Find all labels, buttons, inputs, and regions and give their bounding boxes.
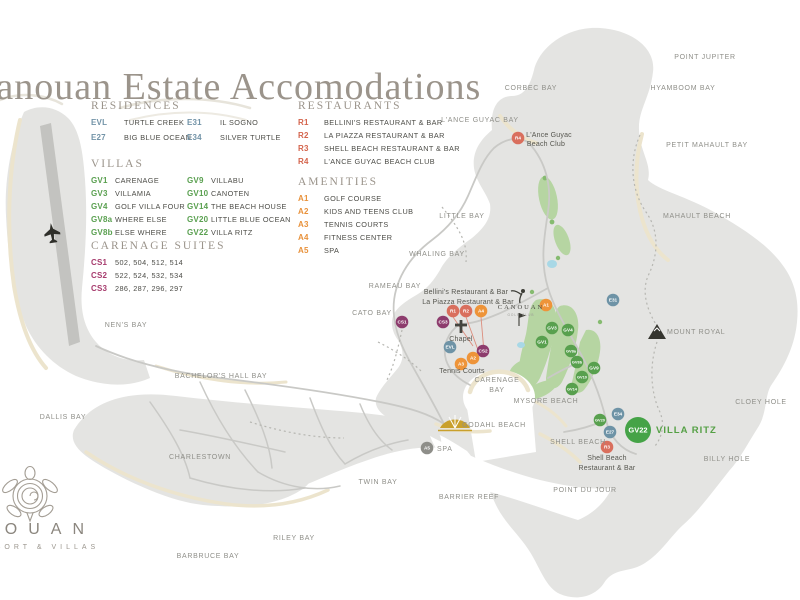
legend-label: 286, 287, 296, 297: [115, 284, 183, 293]
turtle-logo-icon: [1, 467, 60, 522]
legend-heading-villas: VILLAS: [91, 158, 283, 170]
map-label: NEN'S BAY: [105, 322, 148, 329]
legend-code: R4: [298, 157, 324, 166]
map-label: MAHAULT BEACH: [663, 213, 731, 220]
legend-item-GV20: GV20LITTLE BLUE OCEAN: [187, 215, 283, 225]
svg-text:GV8a: GV8a: [566, 348, 577, 353]
svg-text:GV9: GV9: [589, 366, 599, 371]
svg-text:GV1: GV1: [537, 340, 547, 345]
legend-label: LITTLE BLUE OCEAN: [211, 215, 291, 224]
legend-code: GV1: [91, 176, 115, 185]
legend-label: THE BEACH HOUSE: [211, 202, 287, 211]
legend-item-R2: R2LA PIAZZA RESTAURANT & BAR: [298, 131, 460, 141]
legend-code: GV8a: [91, 215, 115, 224]
svg-text:GV8b: GV8b: [572, 359, 583, 364]
map-marker-R1[interactable]: R1: [447, 305, 460, 318]
svg-text:R1: R1: [450, 309, 456, 314]
legend-residences: RESIDENCESEVLTURTLE CREEKE27BIG BLUE OCE…: [91, 100, 283, 147]
golf-club-subtitle: GOLF CLUB: [507, 313, 534, 317]
legend-label: 502, 504, 512, 514: [115, 258, 183, 267]
legend-label: SHELL BEACH RESTAURANT & BAR: [324, 144, 460, 153]
legend-code: CS1: [91, 258, 115, 267]
legend-code: E27: [91, 133, 124, 142]
legend-amenities: AMENITIESA1GOLF COURSEA2KIDS AND TEENS C…: [298, 176, 413, 259]
map-label: GODAHL BEACH: [462, 422, 526, 429]
legend-code: A1: [298, 194, 324, 203]
map-marker-GV22[interactable]: GV22: [625, 417, 651, 443]
legend-label: TURTLE CREEK: [124, 118, 184, 127]
map-label: RAMEAU BAY: [369, 283, 421, 290]
legend-label: LA PIAZZA RESTAURANT & BAR: [324, 131, 445, 140]
map-label: LITTLE BAY: [439, 213, 484, 220]
map-label: CHARLESTOWN: [169, 454, 231, 461]
map-label: CARENAGE: [475, 377, 520, 384]
legend-code: A4: [298, 233, 324, 242]
legend-label: SPA: [324, 246, 339, 255]
legend-carenage_suites: CARENAGE SUITESCS1502, 504, 512, 514CS25…: [91, 240, 225, 297]
map-marker-GV3[interactable]: GV3: [546, 322, 559, 335]
map-marker-GV4[interactable]: GV4: [562, 324, 575, 337]
legend-item-GV14: GV14THE BEACH HOUSE: [187, 202, 283, 212]
map-label: Bellini's Restaurant & Bar: [424, 289, 509, 296]
map-label: SPA: [437, 446, 453, 453]
legend-item-GV10: GV10CANOTEN: [187, 189, 283, 199]
legend-code: GV3: [91, 189, 115, 198]
legend-restaurants: RESTAURANTSR1BELLINI'S RESTAURANT & BARR…: [298, 100, 460, 170]
map-label: BACHELOR'S HALL BAY: [175, 373, 267, 380]
legend-item-E27: E27BIG BLUE OCEAN: [91, 133, 187, 143]
legend-label: KIDS AND TEENS CLUB: [324, 207, 413, 216]
legend-item-E34: E34SILVER TURTLE: [187, 133, 283, 143]
map-marker-GV9[interactable]: GV9: [588, 362, 601, 375]
svg-text:GV4: GV4: [563, 328, 573, 333]
map-label: SHELL BEACH: [550, 439, 606, 446]
svg-text:A4: A4: [478, 309, 484, 314]
legend-item-R3: R3SHELL BEACH RESTAURANT & BAR: [298, 144, 460, 154]
svg-text:A3: A3: [458, 362, 464, 367]
legend-code: GV10: [187, 189, 211, 198]
map-label: CLOEY HOLE: [735, 399, 787, 406]
legend-code: GV8b: [91, 228, 115, 237]
map-marker-CS3[interactable]: CS3: [437, 316, 450, 329]
map-marker-GV14[interactable]: GV14: [566, 383, 579, 396]
resort-logo-name: CANOUAN: [0, 521, 95, 539]
svg-text:R2: R2: [463, 309, 469, 314]
map-marker-R4[interactable]: R4: [512, 132, 525, 145]
map-label: Beach Club: [527, 141, 565, 148]
svg-text:E34: E34: [614, 412, 623, 417]
legend-label: CARENAGE: [115, 176, 159, 185]
legend-item-E31: E31IL SOGNO: [187, 118, 283, 128]
svg-text:CS1: CS1: [397, 320, 407, 325]
legend-item-GV3: GV3VILLAMIA: [91, 189, 187, 199]
legend-item-R4: R4L'ANCE GUYAC BEACH CLUB: [298, 157, 460, 167]
svg-text:A2: A2: [470, 356, 476, 361]
legend-label: VILLA RITZ: [211, 228, 253, 237]
svg-text:E31: E31: [609, 298, 618, 303]
resort-logo-tagline: RESORT & VILLAS: [0, 544, 99, 551]
legend-code: GV14: [187, 202, 211, 211]
legend-label: ELSE WHERE: [115, 228, 167, 237]
legend-code: A2: [298, 207, 324, 216]
legend-item-A2: A2KIDS AND TEENS CLUB: [298, 207, 413, 217]
svg-text:GV10: GV10: [577, 374, 587, 379]
legend-villas: VILLASGV1CARENAGEGV3VILLAMIAGV4GOLF VILL…: [91, 158, 283, 241]
legend-item-R1: R1BELLINI'S RESTAURANT & BAR: [298, 118, 460, 128]
legend-code: E31: [187, 118, 220, 127]
map-label: POINT JUPITER: [674, 54, 735, 61]
legend-label: CANOTEN: [211, 189, 249, 198]
svg-text:R4: R4: [515, 136, 521, 141]
golf-club-name: CANOUAN: [498, 304, 545, 311]
legend-item-GV4: GV4GOLF VILLA FOUR: [91, 202, 187, 212]
page-title: Canouan Estate Accomodations: [0, 65, 590, 109]
map-label: MOUNT ROYAL: [667, 329, 725, 336]
svg-text:GV3: GV3: [547, 326, 557, 331]
map-label: Shell Beach: [587, 455, 627, 462]
legend-label: WHERE ELSE: [115, 215, 167, 224]
map-marker-E31[interactable]: E31: [607, 294, 620, 307]
legend-code: CS2: [91, 271, 115, 280]
legend-code: E34: [187, 133, 220, 142]
legend-code: A5: [298, 246, 324, 255]
svg-text:CS3: CS3: [438, 320, 448, 325]
legend-code: R1: [298, 118, 324, 127]
legend-item-A5: A5SPA: [298, 246, 413, 256]
legend-heading-residences: RESIDENCES: [91, 100, 283, 112]
map-label: BARBRUCE BAY: [177, 553, 240, 560]
legend-code: R2: [298, 131, 324, 140]
legend-label: BELLINI'S RESTAURANT & BAR: [324, 118, 443, 127]
legend-item-GV1: GV1CARENAGE: [91, 176, 187, 186]
svg-text:GV22: GV22: [628, 426, 647, 435]
legend-item-GV22: GV22VILLA RITZ: [187, 228, 283, 238]
map-label: HYAMBOOM BAY: [651, 85, 716, 92]
map-marker-R2[interactable]: R2: [460, 305, 473, 318]
map-label: VILLA RITZ: [656, 425, 717, 436]
legend-item-A4: A4FITNESS CENTER: [298, 233, 413, 243]
legend-item-CS1: CS1502, 504, 512, 514: [91, 258, 183, 268]
legend-label: VILLABU: [211, 176, 244, 185]
map-label: TWIN BAY: [359, 479, 398, 486]
map-label: Chapel: [449, 336, 473, 343]
svg-text:EVL: EVL: [445, 345, 454, 350]
legend-heading-carenage_suites: CARENAGE SUITES: [91, 240, 225, 252]
legend-heading-restaurants: RESTAURANTS: [298, 100, 460, 112]
map-marker-GV8a[interactable]: GV8a: [565, 345, 578, 358]
legend-label: BIG BLUE OCEAN: [124, 133, 191, 142]
map-label: BARRIER REEF: [439, 494, 499, 501]
legend-item-CS2: CS2522, 524, 532, 534: [91, 271, 183, 281]
map-label: RILEY BAY: [273, 535, 315, 542]
legend-heading-amenities: AMENITIES: [298, 176, 413, 188]
map-label: Restaurant & Bar: [579, 465, 636, 472]
legend-item-GV9: GV9VILLABU: [187, 176, 283, 186]
map-marker-GV20[interactable]: GV20: [594, 414, 607, 427]
legend-code: R3: [298, 144, 324, 153]
legend-label: FITNESS CENTER: [324, 233, 392, 242]
legend-label: GOLF VILLA FOUR: [115, 202, 185, 211]
svg-text:E27: E27: [606, 430, 615, 435]
map-label: PETIT MAHAULT BAY: [666, 142, 748, 149]
legend-item-GV8b: GV8bELSE WHERE: [91, 228, 187, 238]
legend-item-EVL: EVLTURTLE CREEK: [91, 118, 187, 128]
map-marker-GV1[interactable]: GV1: [536, 336, 549, 349]
map-label: DALLIS BAY: [40, 414, 87, 421]
map-marker-A4[interactable]: A4: [475, 305, 488, 318]
map-marker-CS1[interactable]: CS1: [396, 316, 409, 329]
map-label: Tennis Courts: [439, 368, 485, 375]
legend-code: GV22: [187, 228, 211, 237]
map-label: MYSORE BEACH: [514, 398, 579, 405]
map-label: L'Ance Guyac: [526, 132, 572, 139]
legend-item-CS3: CS3286, 287, 296, 297: [91, 284, 183, 294]
svg-text:CS2: CS2: [478, 349, 488, 354]
legend-code: GV9: [187, 176, 211, 185]
legend-label: VILLAMIA: [115, 189, 151, 198]
legend-label: 522, 524, 532, 534: [115, 271, 183, 280]
legend-label: SILVER TURTLE: [220, 133, 281, 142]
map-marker-E27[interactable]: E27: [604, 426, 617, 439]
map-marker-GV8b[interactable]: GV8b: [571, 356, 584, 369]
map-marker-GV10[interactable]: GV10: [576, 371, 589, 384]
legend-code: A3: [298, 220, 324, 229]
legend-item-A3: A3TENNIS COURTS: [298, 220, 413, 230]
legend-code: GV20: [187, 215, 211, 224]
map-label: POINT DU JOUR: [553, 487, 616, 494]
legend-code: CS3: [91, 284, 115, 293]
legend-label: GOLF COURSE: [324, 194, 382, 203]
map-marker-A5[interactable]: A5: [421, 442, 434, 455]
legend-label: L'ANCE GUYAC BEACH CLUB: [324, 157, 435, 166]
map-label: CATO BAY: [352, 310, 392, 317]
legend-label: IL SOGNO: [220, 118, 258, 127]
map-marker-E34[interactable]: E34: [612, 408, 625, 421]
legend-label: TENNIS COURTS: [324, 220, 389, 229]
legend-item-A1: A1GOLF COURSE: [298, 194, 413, 204]
legend-item-GV8a: GV8aWHERE ELSE: [91, 215, 187, 225]
legend-code: GV4: [91, 202, 115, 211]
map-label: BILLY HOLE: [704, 456, 750, 463]
map-marker-A2[interactable]: A2: [467, 352, 480, 365]
svg-text:GV20: GV20: [595, 417, 605, 422]
svg-text:GV14: GV14: [567, 386, 578, 391]
map-label: BAY: [489, 387, 505, 394]
map-label: WHALING BAY: [409, 251, 465, 258]
legend-code: EVL: [91, 118, 124, 127]
svg-text:A5: A5: [424, 446, 430, 451]
